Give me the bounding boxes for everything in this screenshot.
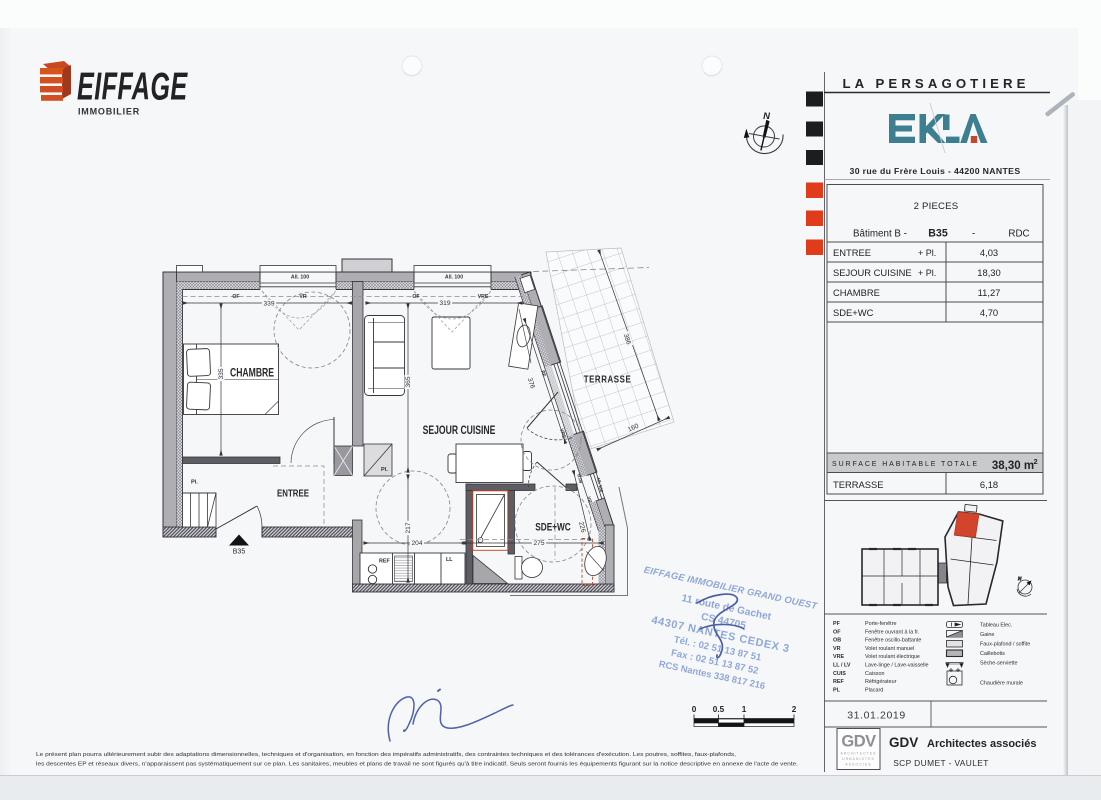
svg-text:Le présent plan pourra ultérie: Le présent plan pourra ultérieurement su…: [36, 752, 736, 758]
svg-text:ENTREE: ENTREE: [833, 247, 871, 258]
svg-text:Fenêtre oscillo-battante: Fenêtre oscillo-battante: [865, 638, 921, 644]
svg-text:226: 226: [577, 521, 587, 534]
svg-text:31.01.2019: 31.01.2019: [847, 710, 906, 722]
svg-text:All. 100: All. 100: [291, 275, 309, 281]
svg-text:SEJOUR CUISINE: SEJOUR CUISINE: [833, 267, 912, 278]
svg-text:Réfrigérateur: Réfrigérateur: [865, 679, 897, 685]
svg-text:275: 275: [533, 540, 544, 547]
svg-text:RDC: RDC: [1008, 229, 1029, 240]
svg-text:Chaudière murale: Chaudière murale: [980, 681, 1023, 687]
svg-text:-: -: [972, 229, 975, 240]
svg-text:CUIS: CUIS: [833, 671, 846, 677]
svg-text:0: 0: [692, 705, 697, 714]
svg-text:4,03: 4,03: [980, 247, 998, 258]
svg-text:OB: OB: [833, 638, 841, 644]
svg-text:Porte-fenêtre: Porte-fenêtre: [865, 621, 896, 627]
svg-text:TERRASSE: TERRASSE: [584, 373, 632, 384]
svg-text:PF: PF: [539, 370, 547, 378]
svg-text:B35: B35: [233, 549, 246, 556]
svg-text:SEJOUR CUISINE: SEJOUR CUISINE: [423, 425, 496, 437]
svg-text:1: 1: [742, 705, 747, 714]
svg-text:B35: B35: [928, 228, 948, 240]
svg-text:GDV: GDV: [841, 733, 876, 751]
svg-text:Tableau Elec.: Tableau Elec.: [980, 623, 1012, 629]
svg-text:OF: OF: [232, 294, 239, 300]
svg-text:VRE: VRE: [833, 654, 844, 660]
svg-text:SDE+WC: SDE+WC: [833, 307, 874, 318]
svg-text:SURFACE HABITABLE TOTALE: SURFACE HABITABLE TOTALE: [832, 461, 979, 468]
svg-text:11,27: 11,27: [978, 287, 1001, 298]
svg-text:IMMOBILIER: IMMOBILIER: [78, 107, 140, 117]
svg-text:REF: REF: [379, 559, 390, 565]
svg-text:Volet roulant électrique: Volet roulant électrique: [865, 654, 920, 660]
svg-text:339: 339: [263, 301, 274, 308]
svg-text:Fenêtre ouvrant à la fr.: Fenêtre ouvrant à la fr.: [865, 629, 919, 635]
svg-text:319: 319: [439, 300, 450, 307]
svg-text:6,18: 6,18: [980, 479, 998, 490]
svg-text:TERRASSE: TERRASSE: [833, 479, 884, 490]
svg-text:Sèche-serviette: Sèche-serviette: [980, 661, 1017, 667]
svg-text:VR: VR: [299, 294, 306, 300]
svg-text:VR: VR: [833, 646, 841, 652]
svg-text:204: 204: [411, 540, 422, 547]
svg-text:ENTREE: ENTREE: [277, 487, 309, 498]
svg-text:Architectes associés: Architectes associés: [927, 738, 1036, 750]
svg-text:OF: OF: [833, 629, 841, 635]
svg-text:2: 2: [1034, 457, 1038, 466]
svg-text:LL / LV: LL / LV: [833, 663, 851, 669]
svg-text:PF: PF: [833, 621, 841, 627]
svg-text:Bâtiment B -: Bâtiment B -: [853, 229, 907, 240]
svg-text:0.5: 0.5: [713, 705, 725, 714]
svg-text:All. 100: All. 100: [445, 275, 463, 281]
svg-text:2 PIECES: 2 PIECES: [914, 201, 959, 212]
svg-text:335: 335: [218, 368, 225, 379]
svg-text:N: N: [1018, 576, 1022, 581]
svg-text:LL: LL: [446, 557, 453, 563]
svg-text:LA PERSAGOTIERE: LA PERSAGOTIERE: [842, 76, 1029, 91]
svg-text:Faux-plafond / soffite: Faux-plafond / soffite: [980, 642, 1030, 648]
svg-text:SDE+WC: SDE+WC: [535, 521, 571, 533]
svg-text:OF: OF: [412, 294, 419, 300]
svg-text:18,30: 18,30: [977, 267, 1000, 278]
svg-text:+ Pl.: + Pl.: [918, 268, 936, 278]
svg-text:38,30 m: 38,30 m: [992, 460, 1034, 472]
svg-text:B.09: B.09: [576, 474, 583, 485]
svg-text:ARCHITECTES: ARCHITECTES: [840, 752, 876, 756]
svg-text:CHAMBRE: CHAMBRE: [230, 367, 274, 379]
svg-text:PL: PL: [833, 687, 841, 693]
svg-text:4,70: 4,70: [980, 307, 998, 318]
svg-text:2: 2: [792, 705, 797, 714]
svg-text:30 rue du Frère Louis - 44200: 30 rue du Frère Louis - 44200 NANTES: [850, 166, 1021, 176]
svg-text:URBANISTES: URBANISTES: [842, 757, 875, 761]
svg-text:217: 217: [405, 522, 412, 533]
svg-text:Gaine: Gaine: [980, 632, 994, 638]
svg-text:VRE: VRE: [478, 294, 489, 300]
svg-text:SCP DUMET - VAULET: SCP DUMET - VAULET: [893, 758, 989, 768]
svg-text:ASSOCIES: ASSOCIES: [845, 763, 871, 767]
svg-text:365: 365: [405, 376, 412, 387]
svg-text:Volet roulant manuel: Volet roulant manuel: [865, 646, 914, 652]
svg-text:GDV: GDV: [889, 735, 918, 750]
svg-text:Caisson: Caisson: [865, 671, 884, 677]
svg-text:Pl.: Pl.: [381, 467, 388, 473]
svg-text:les descentes EP et réseaux di: les descentes EP et réseaux divers, n'ap…: [36, 762, 798, 768]
svg-text:+ Pl.: + Pl.: [918, 248, 936, 258]
svg-text:CHAMBRE: CHAMBRE: [833, 287, 880, 298]
svg-text:Caillebotis: Caillebotis: [980, 651, 1005, 657]
svg-text:EIFFAGE: EIFFAGE: [77, 65, 188, 108]
svg-text:REF: REF: [833, 679, 844, 685]
svg-text:Pl.: Pl.: [191, 480, 198, 486]
svg-text:Lave-linge / Lave-vaisselle: Lave-linge / Lave-vaisselle: [865, 663, 929, 669]
svg-text:Placard: Placard: [865, 687, 883, 693]
